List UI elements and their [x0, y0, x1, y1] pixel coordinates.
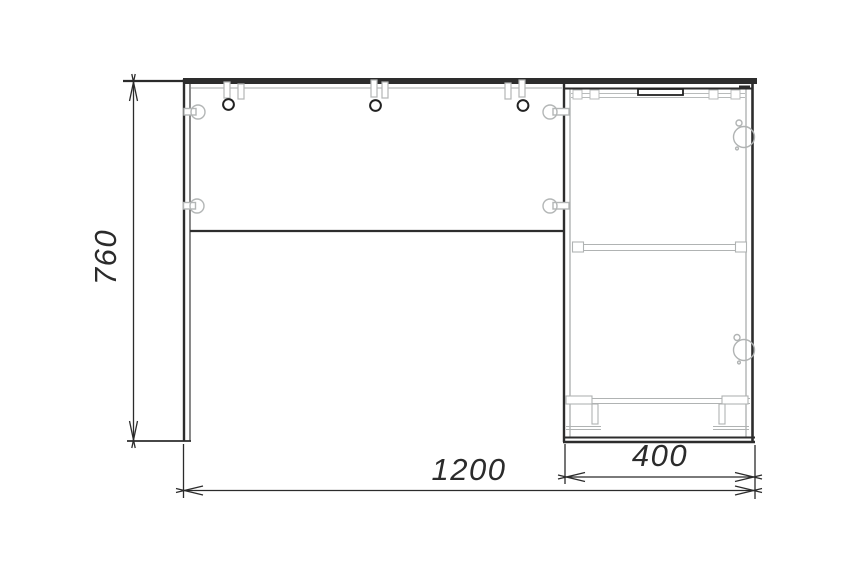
drawer-handle-groove	[638, 89, 683, 95]
dimension-label-cabinet-width: 400	[632, 438, 688, 473]
cabinet-top-tab	[573, 90, 582, 99]
drawing-canvas: 760 1200 400	[0, 0, 856, 571]
dowel-pin	[505, 83, 511, 99]
hinge-screw-icon	[736, 147, 739, 150]
dowel-pin	[382, 82, 388, 98]
hinge-screw-icon	[738, 361, 741, 364]
desk-top-panel	[183, 78, 757, 88]
dowel-pin	[519, 80, 525, 97]
hinge-screw-icon	[736, 120, 742, 126]
hinge-screw-icon	[734, 335, 740, 341]
cam-lock-bar	[553, 203, 569, 210]
bottom-shelf-end-cap	[566, 396, 592, 404]
desk-top-edge	[183, 78, 757, 84]
dowel-pin	[371, 80, 377, 97]
cabinet-body	[563, 82, 755, 442]
plinth-leg	[719, 404, 725, 424]
dowel-pin	[238, 84, 244, 99]
cabinet-top-tab	[590, 90, 599, 99]
fitting-hole-icon	[370, 100, 381, 111]
dimension-cabinet-400: 400	[558, 438, 762, 484]
cam-locks-left-panel	[184, 105, 206, 213]
cabinet-bottom-shelf	[566, 396, 750, 430]
dowel-pin	[224, 82, 230, 98]
dimension-label-total-width: 1200	[432, 452, 507, 487]
shelf-support-tab	[573, 242, 584, 252]
fitting-hole-icon	[223, 99, 234, 110]
cabinet-middle-shelf	[572, 242, 747, 252]
desk-left-side-panel	[127, 79, 191, 441]
cam-lock-bar	[553, 109, 569, 116]
dowel-pin-cluster-2	[370, 80, 388, 111]
fitting-hole-icon	[518, 100, 529, 111]
cabinet-top-tab	[709, 90, 718, 99]
dimension-label-height: 760	[88, 229, 123, 285]
technical-drawing: 760 1200 400	[0, 0, 856, 571]
dowel-pin-cluster-3	[505, 80, 528, 111]
plinth-leg	[592, 404, 598, 424]
bottom-shelf-end-cap	[722, 396, 748, 404]
cabinet-top-corner-block	[739, 86, 750, 90]
dimension-height-760: 760	[88, 74, 183, 448]
shelf-support-tab	[736, 242, 747, 252]
cabinet-top-tab	[731, 90, 740, 99]
dowel-pin-cluster-1	[223, 82, 244, 110]
cam-lock-bar	[184, 109, 196, 116]
